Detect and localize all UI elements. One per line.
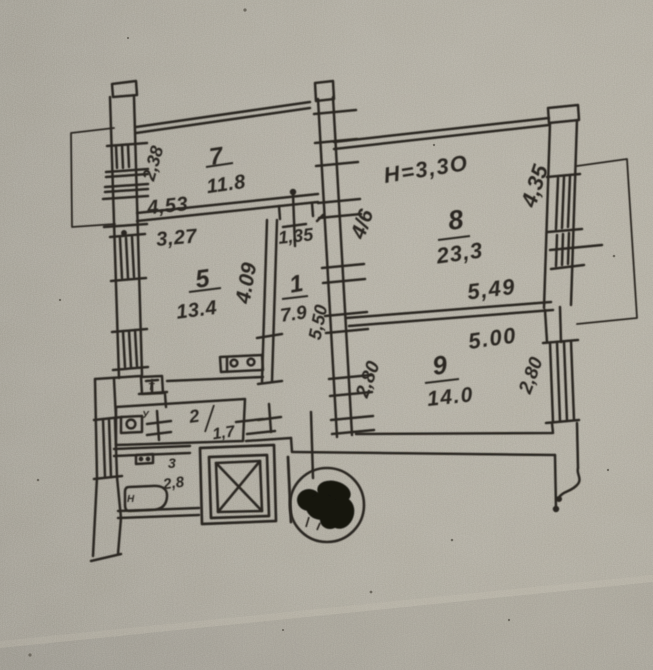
svg-text:2,8: 2,8 — [161, 473, 186, 493]
svg-text:7.9: 7.9 — [279, 302, 309, 327]
svg-text:1,7: 1,7 — [211, 423, 236, 443]
svg-text:Т: Т — [148, 382, 155, 393]
svg-text:14.0: 14.0 — [426, 383, 475, 411]
svg-text:3,27: 3,27 — [155, 225, 198, 251]
svg-text:4,53: 4,53 — [145, 193, 189, 219]
svg-text:Н: Н — [127, 494, 135, 505]
svg-text:3: 3 — [168, 455, 176, 471]
svg-text:1,35: 1,35 — [277, 224, 315, 248]
